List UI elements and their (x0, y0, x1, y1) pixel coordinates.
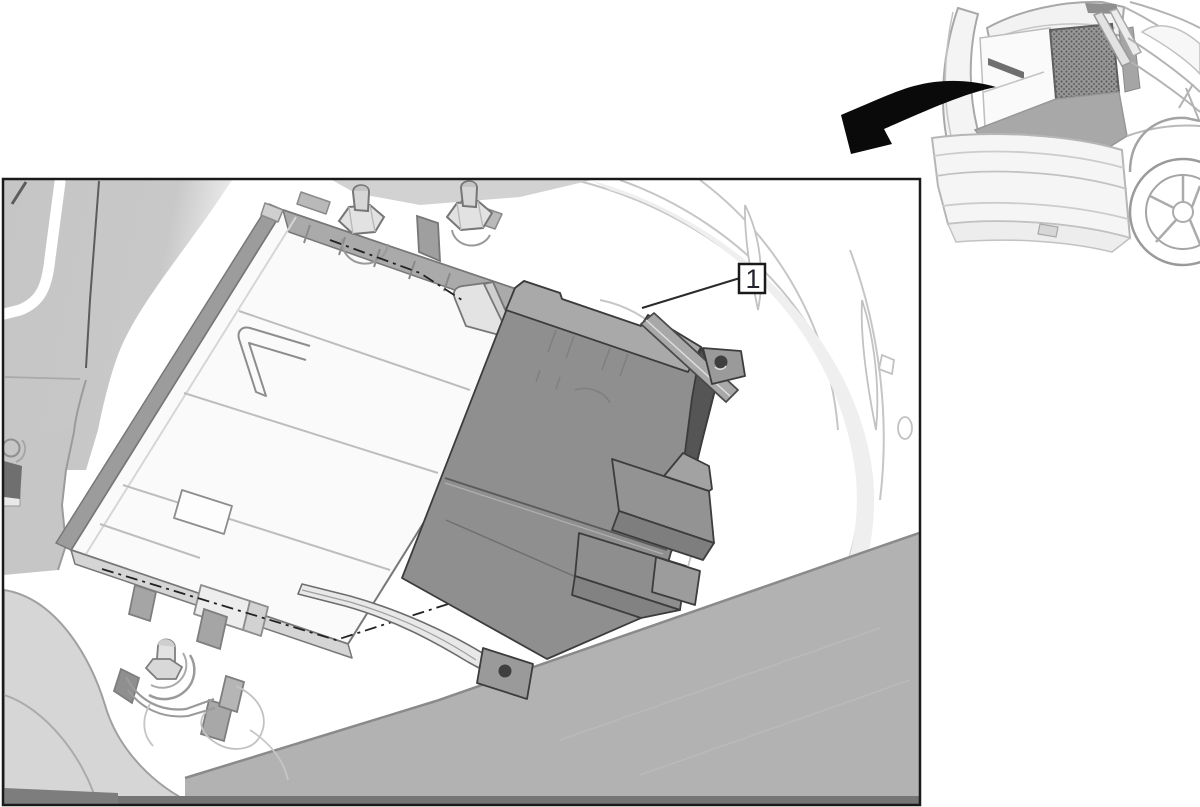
svg-text:1: 1 (745, 264, 760, 294)
